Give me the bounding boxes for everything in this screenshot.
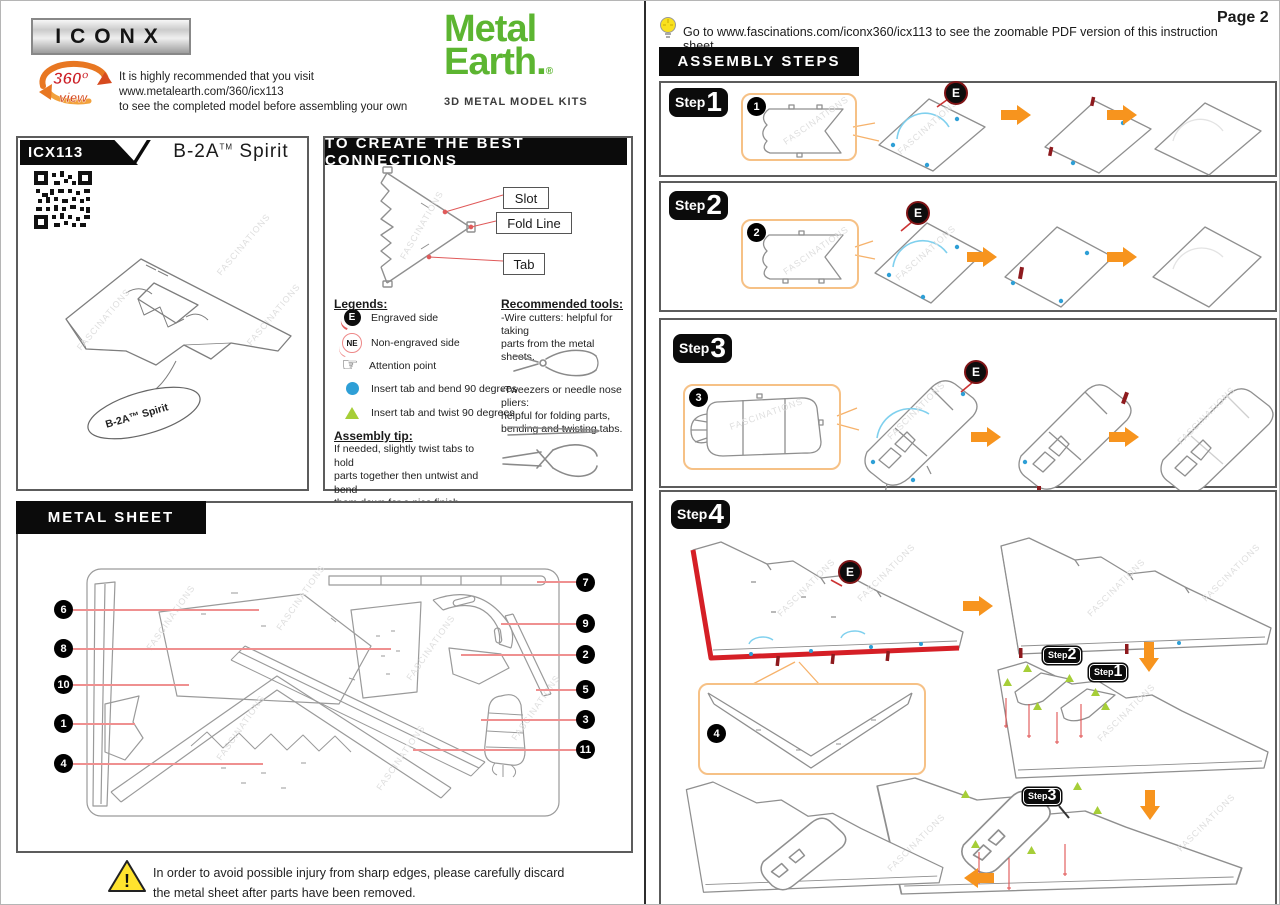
tool2-line2: helpful for folding parts,: [501, 410, 629, 423]
twist-tab-icon: [345, 407, 359, 419]
legend-bend-label: Insert tab and bend 90 degrees: [371, 383, 517, 395]
needle-nose-pliers-icon: [499, 438, 604, 484]
leader-9: [501, 623, 577, 625]
step1-word: Step: [675, 94, 705, 110]
step4-part-number: 4: [707, 724, 726, 743]
registered-mark: ®: [546, 68, 552, 77]
leader-1: [73, 723, 135, 725]
step4-part-box: [698, 683, 926, 775]
step2-number: 2: [706, 193, 722, 217]
tool1-line1: -Wire cutters: helpful for taking: [501, 312, 626, 338]
assembly-tip-title: Assembly tip:: [334, 429, 413, 443]
step2-word: Step: [675, 197, 705, 213]
leader-10: [73, 684, 189, 686]
callout-4: 4: [54, 754, 73, 773]
mini-step1-badge: Step 1: [1089, 664, 1127, 681]
step3-number: 3: [710, 336, 726, 360]
callout-8: 8: [54, 639, 73, 658]
metal-earth-word2: Earth.: [444, 46, 546, 79]
tool2-line1: -Tweezers or needle nose pliers:: [501, 384, 629, 410]
tip-line1: If needed, slightly twist tabs to hold: [334, 443, 494, 470]
legend-twist: Insert tab and twist 90 degrees: [339, 407, 515, 419]
legend-attention-label: Attention point: [369, 360, 436, 372]
metal-earth-tagline: 3D METAL MODEL KITS: [444, 96, 588, 108]
step3-badge: Step 3: [673, 334, 732, 363]
step4-number: 4: [708, 502, 724, 526]
step3-engraved-badge: E: [964, 360, 988, 384]
model-tm: TM: [220, 143, 234, 152]
tools-title: Recommended tools:: [501, 297, 623, 311]
leader-8: [73, 648, 391, 650]
step4-engraved-badge: E: [838, 560, 862, 584]
wire-cutters-icon: [506, 339, 601, 387]
lightbulb-icon: [659, 16, 677, 42]
svg-text:FASCINATIONS: FASCINATIONS: [398, 189, 445, 261]
callout-5: 5: [576, 680, 595, 699]
svg-text:FASCINATIONS: FASCINATIONS: [1200, 542, 1262, 604]
connections-banner: TO CREATE THE BEST CONNECTIONS: [325, 138, 627, 165]
step3-part-number: 3: [689, 388, 708, 407]
recommendation-text: It is highly recommended that you visit …: [119, 70, 419, 115]
legend-engraved: E Engraved side: [339, 309, 438, 326]
warning-icon: !: [107, 858, 147, 894]
mini-step3-badge: Step 3: [1023, 788, 1061, 805]
leader-3: [481, 719, 577, 721]
assembly-steps-banner: ASSEMBLY STEPS: [659, 47, 859, 76]
warning-text: In order to avoid possible injury from s…: [153, 863, 593, 903]
svg-text:FASCINATIONS: FASCINATIONS: [274, 563, 327, 632]
page-divider: [644, 1, 646, 905]
svg-text:FASCINATIONS: FASCINATIONS: [1175, 792, 1237, 854]
360-view-icon: 360º view: [35, 56, 113, 112]
legend-twist-label: Insert tab and twist 90 degrees: [371, 407, 515, 419]
callout-2: 2: [576, 645, 595, 664]
bend-tab-icon: [346, 382, 359, 395]
model-name: B-2A: [173, 141, 219, 162]
leader-11: [413, 749, 577, 751]
legend-engraved-label: Engraved side: [371, 312, 438, 324]
callout-9: 9: [576, 614, 595, 633]
leader-7: [537, 581, 577, 583]
qr-code: [34, 171, 92, 229]
svg-text:!: !: [124, 871, 130, 891]
step1-part-number: 1: [747, 97, 766, 116]
step1-panel: Step 1 1 E: [659, 81, 1277, 177]
slot-label: Slot: [503, 187, 549, 209]
step3-word: Step: [679, 340, 709, 356]
attention-point-icon: ☞: [341, 356, 358, 375]
svg-text:360º: 360º: [53, 69, 88, 88]
mini-step1-number: 1: [1114, 666, 1123, 679]
connections-diagram: FASCINATIONS: [325, 165, 627, 297]
callout-7: 7: [576, 573, 595, 592]
callout-10: 10: [54, 675, 73, 694]
step4-panel: Step 4 E 4 Step 2 Step 1 Step 3: [659, 490, 1277, 905]
recommendation-line2: www.metalearth.com/360/icx113: [119, 85, 419, 100]
non-engraved-side-icon: NE: [342, 333, 362, 353]
tweezers-icon: [504, 424, 604, 438]
metal-earth-logo: Metal Earth. ®: [444, 13, 552, 80]
mini-step3-word: Step: [1028, 791, 1048, 801]
step1-engraved-badge: E: [944, 81, 968, 105]
mini-step2-number: 2: [1068, 649, 1077, 662]
leader-2: [461, 654, 577, 656]
tab-label: Tab: [503, 253, 545, 275]
svg-text:view: view: [59, 90, 88, 105]
arrow-down-icon: [1140, 790, 1160, 820]
mini-step1-word: Step: [1094, 667, 1114, 677]
step2-engraved-badge: E: [906, 201, 930, 225]
completed-model-drawing: B-2A™ Spirit FASCINATIONS FASCINATIONS F…: [26, 231, 301, 481]
arrow-right-icon: [971, 427, 1001, 447]
metal-sheet-drawing: FASCINATIONS FASCINATIONS FASCINATIONS F…: [81, 556, 571, 826]
step4-badge: Step 4: [671, 500, 730, 529]
tip-line2: parts together then untwist and bend: [334, 470, 494, 497]
svg-text:FASCINATIONS: FASCINATIONS: [144, 583, 197, 652]
legend-non-engraved: NE Non-engraved side: [339, 333, 460, 353]
arrow-right-icon: [1001, 105, 1031, 125]
legend-bend: Insert tab and bend 90 degrees: [339, 382, 517, 395]
arrow-right-icon: [963, 596, 993, 616]
callout-1: 1: [54, 714, 73, 733]
step1-number: 1: [706, 90, 722, 114]
step2-panel: Step 2 2 E: [659, 181, 1277, 312]
model-title: B-2ATM Spirit: [161, 141, 301, 163]
recommendation-line1: It is highly recommended that you visit: [119, 70, 419, 85]
model-variant: Spirit: [239, 141, 288, 162]
leader-6: [73, 609, 259, 611]
svg-text:FASCINATIONS: FASCINATIONS: [509, 673, 562, 742]
step2-badge: Step 2: [669, 191, 728, 220]
mini-step3-number: 3: [1048, 790, 1057, 803]
instruction-sheet: ICONX 360º view It is highly recommended…: [0, 0, 1280, 905]
step4-word: Step: [677, 506, 707, 522]
svg-text:FASCINATIONS: FASCINATIONS: [855, 542, 917, 604]
iconx-logo: ICONX: [31, 18, 191, 55]
svg-text:FASCINATIONS: FASCINATIONS: [214, 693, 267, 762]
leader-4: [73, 763, 263, 765]
callout-6: 6: [54, 600, 73, 619]
page-number: Page 2: [1217, 9, 1269, 27]
legend-attention: ☞ Attention point: [337, 356, 436, 375]
fold-line-label: Fold Line: [496, 212, 572, 234]
callout-11: 11: [576, 740, 595, 759]
warning-line1: In order to avoid possible injury from s…: [153, 863, 593, 883]
mini-step2-badge: Step 2: [1043, 647, 1081, 664]
leader-5: [536, 689, 577, 691]
step2-part-number: 2: [747, 223, 766, 242]
step1-badge: Step 1: [669, 88, 728, 117]
engraved-side-icon: E: [344, 309, 361, 326]
mini-step2-word: Step: [1048, 650, 1068, 660]
metal-sheet-banner: METAL SHEET: [16, 501, 206, 534]
legend-non-engraved-label: Non-engraved side: [371, 337, 460, 349]
warning-line2: the metal sheet after parts have been re…: [153, 883, 593, 903]
callout-3: 3: [576, 710, 595, 729]
arrow-right-icon: [1107, 247, 1137, 267]
step3-panel: Step 3 3 E: [659, 318, 1277, 488]
recommendation-line3: to see the completed model before assemb…: [119, 100, 419, 115]
